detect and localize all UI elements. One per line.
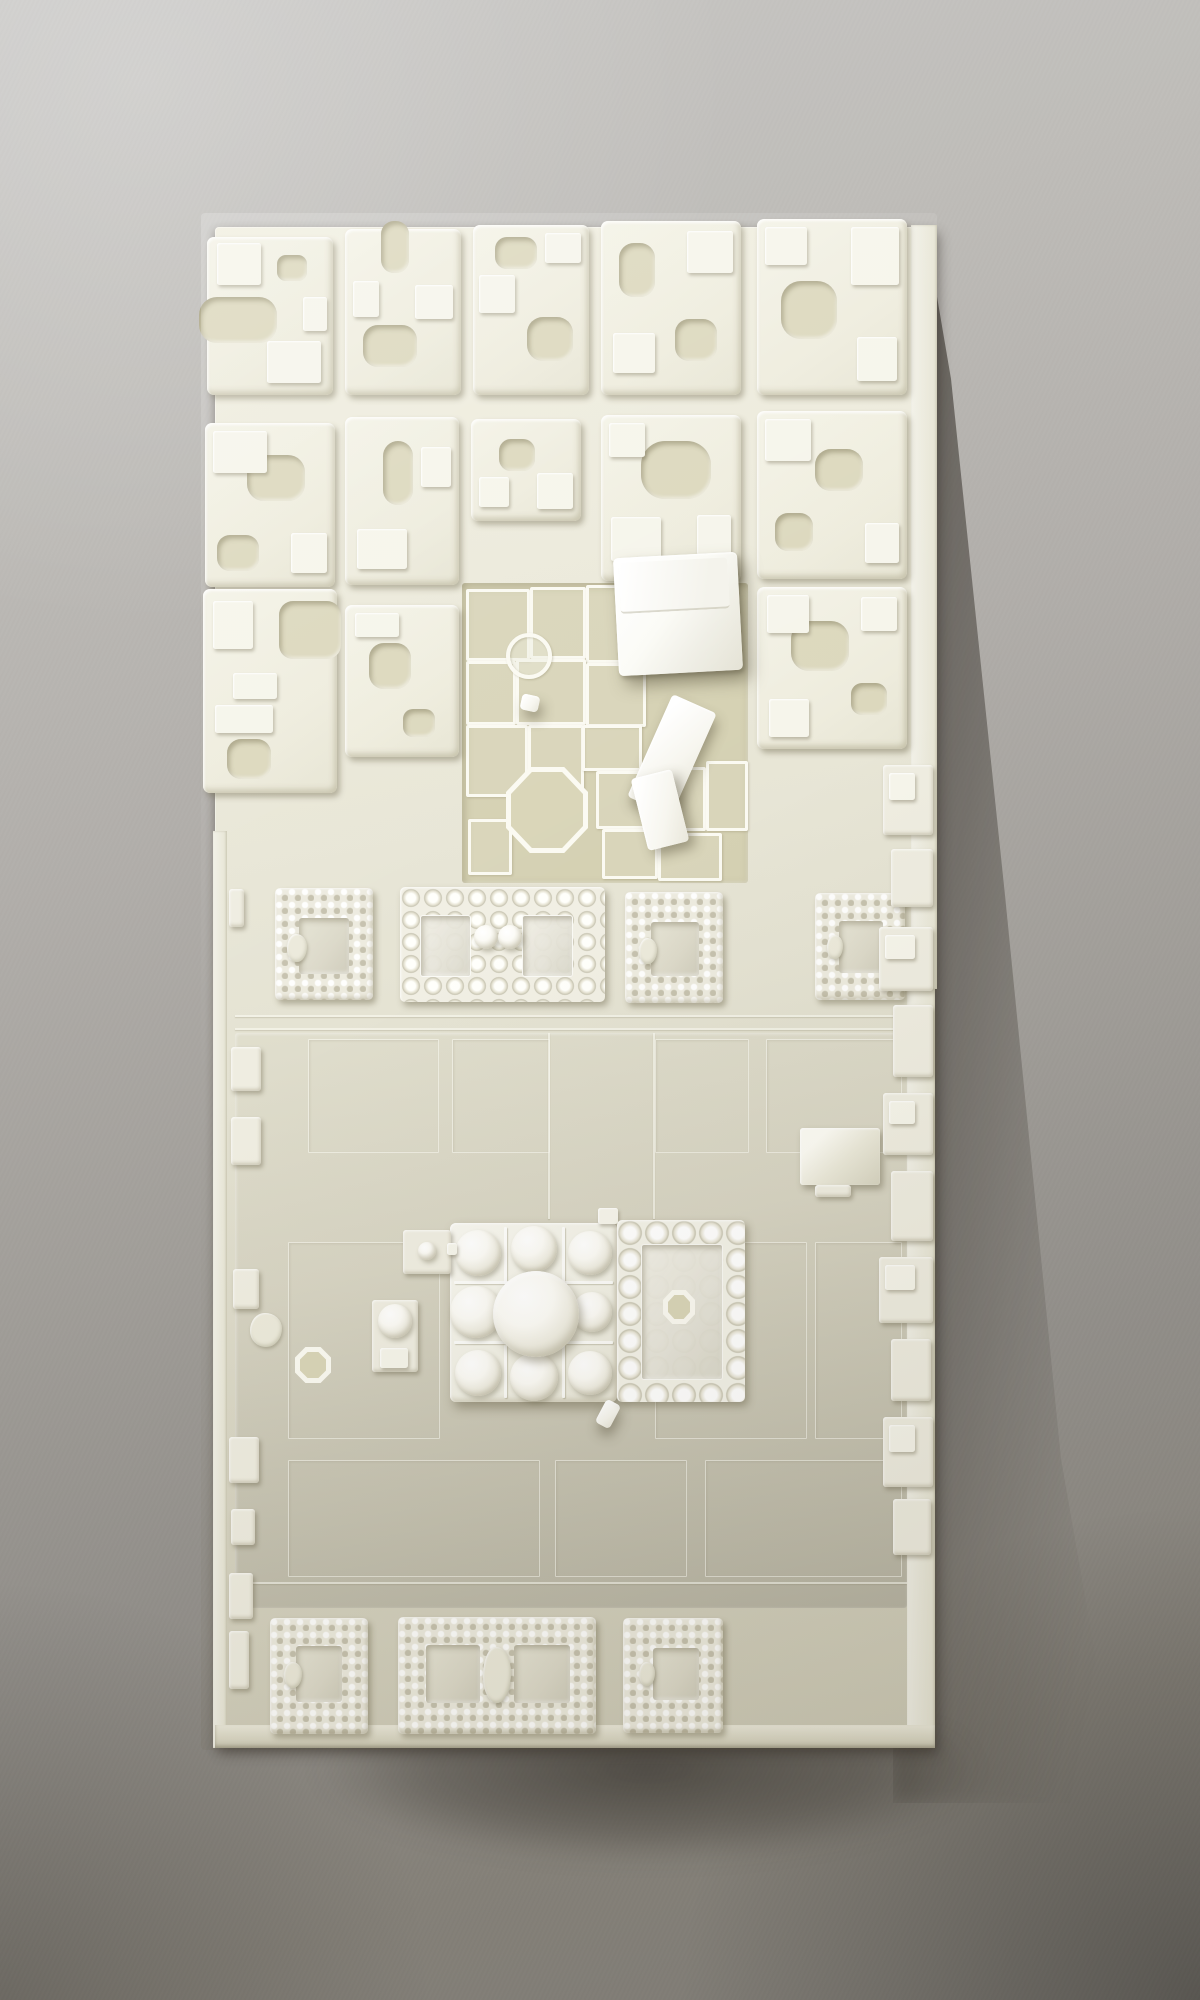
block-rooftop [687,231,733,273]
edge-fragment [891,1171,933,1241]
block-rooftop [697,515,731,555]
city-block [757,219,907,395]
block-courtyard-cut [279,601,341,659]
fountain-octagon-floor [668,1295,690,1319]
pyramid-roof-building [800,1128,880,1185]
block-rooftop [479,477,509,507]
block-courtyard-cut [277,255,307,281]
block-courtyard-cut [227,739,271,779]
block-courtyard-cut [499,439,535,471]
dome [498,925,522,949]
block-rooftop [353,281,379,317]
excavation-cell [706,761,748,831]
knurled-enclosure [398,1617,596,1734]
block-rooftop [355,613,399,637]
city-block [757,411,907,579]
block-rooftop [769,699,809,737]
street-line [235,1582,907,1584]
edge-tab [231,1117,261,1165]
block-rooftop [613,333,655,373]
block-courtyard-cut [641,441,711,499]
city-block [601,221,741,395]
block-courtyard-cut [815,449,863,491]
edge-fragment [883,1093,933,1155]
plaza-etched-panel [555,1460,687,1577]
block-rooftop [865,523,899,563]
edge-fragment [883,1417,933,1487]
courtyard [514,1645,570,1703]
block-rooftop [765,419,811,461]
block-courtyard-cut [619,243,655,297]
city-block [203,589,337,793]
edge-fragment [891,849,933,907]
mosque-central-dome [493,1271,579,1357]
white-prism-building [613,552,743,676]
mosque-dome [455,1230,501,1276]
mosque-dome [510,1353,558,1401]
block-courtyard-cut [675,319,717,361]
block-rooftop [217,243,261,285]
edge-fragment [891,1339,931,1401]
edge-tab [229,889,244,927]
beaded-enclosure [625,892,723,1003]
city-block [345,605,459,757]
edge-fragment [879,927,933,991]
excavation-cell [468,819,512,875]
model-base [215,227,935,1748]
block-rooftop [303,297,327,331]
city-block [471,419,581,521]
plaza-etched-panel [288,1460,540,1577]
mosque-dome [511,1226,557,1272]
knurled-enclosure [270,1618,368,1734]
block-rooftop [213,601,253,649]
city-block [345,229,461,395]
block-rooftop [611,517,661,561]
edge-fragment [879,1257,933,1323]
block-courtyard-cut [851,683,887,715]
platform-neck [447,1243,457,1255]
octagonal-pier-top [300,1352,326,1378]
edge-fragment-notch [885,935,915,959]
dome [474,925,498,949]
cast-shadow-bottom [270,1732,1090,1962]
block-rooftop [233,673,277,699]
block-rooftop [609,423,645,457]
tilted-white-slab [520,693,541,712]
fountain-octagon [663,1290,695,1324]
block-rooftop [861,597,897,631]
edge-tab [231,1047,261,1091]
octagonal-courtyard-floor [511,772,583,848]
block-courtyard-cut [363,325,417,367]
courtyard [839,921,883,973]
mosque-dome [455,1350,501,1396]
mosque-complex [450,1223,617,1402]
block-courtyard-cut [527,317,573,361]
edge-tab [229,1573,253,1619]
edge-fragment [893,1005,933,1077]
edge-tab [229,1437,259,1483]
edge-fragment-notch [889,773,915,800]
mosque-entrance-pishtaq [598,1208,618,1224]
edge-fragment [883,765,933,835]
excavation-cell [466,661,516,725]
edge-fragment-notch [885,1265,915,1290]
city-block [757,587,907,749]
courtyard [296,1646,342,1702]
block-rooftop [215,705,273,733]
street-line [235,1015,907,1017]
block-rooftop [537,473,573,509]
city-block [207,237,333,395]
block-courtyard-cut [381,221,409,273]
octagonal-courtyard [506,767,588,853]
mosque-dome [568,1231,612,1275]
block-rooftop [767,595,809,633]
block-courtyard-cut [217,535,259,571]
block-courtyard-cut [369,643,411,689]
block-courtyard-cut [781,281,837,339]
courtyard [653,1648,699,1700]
dome-platform [403,1230,451,1274]
circular-structure [506,633,552,679]
edge-tab [229,1631,249,1689]
block-courtyard-cut [403,709,435,737]
city-block [345,417,459,585]
city-block [473,225,589,395]
block-rooftop [545,233,581,263]
city-block [205,423,335,587]
edge-tab [231,1509,255,1545]
beaded-enclosure [275,888,373,1000]
street-line [235,1028,907,1030]
block-courtyard-cut [199,297,277,343]
mosque-dome [568,1351,612,1395]
mosque-courtyard [617,1220,745,1402]
block-rooftop [857,337,897,381]
courtyard [651,922,699,976]
block-courtyard-cut [775,513,813,551]
plaza-etched-panel [452,1039,550,1153]
beaded-enclosure [400,887,605,1002]
base-bevel-left [213,831,227,1748]
domed-kiosk [372,1300,418,1372]
block-rooftop [765,227,807,265]
block-courtyard-cut [383,441,413,505]
kiosk-dome [378,1304,412,1338]
excavation-cell [582,725,642,771]
platform-dome [418,1242,436,1260]
street-line [548,1033,550,1219]
photo-scene [0,0,1200,2000]
edge-fragment-notch [889,1101,915,1124]
plaza-etched-panel [705,1460,902,1577]
block-rooftop [851,227,899,285]
block-rooftop [267,341,321,383]
knurled-enclosure [623,1618,723,1733]
block-rooftop [213,431,267,473]
block-rooftop [479,275,515,313]
block-rooftop [415,285,453,319]
plaza-etched-panel [308,1039,439,1153]
block-rooftop [291,533,327,573]
block-rooftop [421,447,451,487]
edge-fragment [893,1499,931,1555]
street-line [653,1033,655,1219]
courtyard [522,915,573,977]
plaza-etched-panel [655,1039,749,1153]
pyramid-building-base-tab [815,1185,851,1197]
weathered-blob [483,1647,511,1703]
block-courtyard-cut [495,237,537,269]
courtyard [420,915,471,977]
courtyard [426,1645,480,1703]
kiosk-step [380,1348,408,1368]
edge-tab [233,1269,259,1309]
block-rooftop [357,529,407,569]
edge-fragment-notch [889,1425,915,1452]
octagonal-pier [295,1347,331,1383]
